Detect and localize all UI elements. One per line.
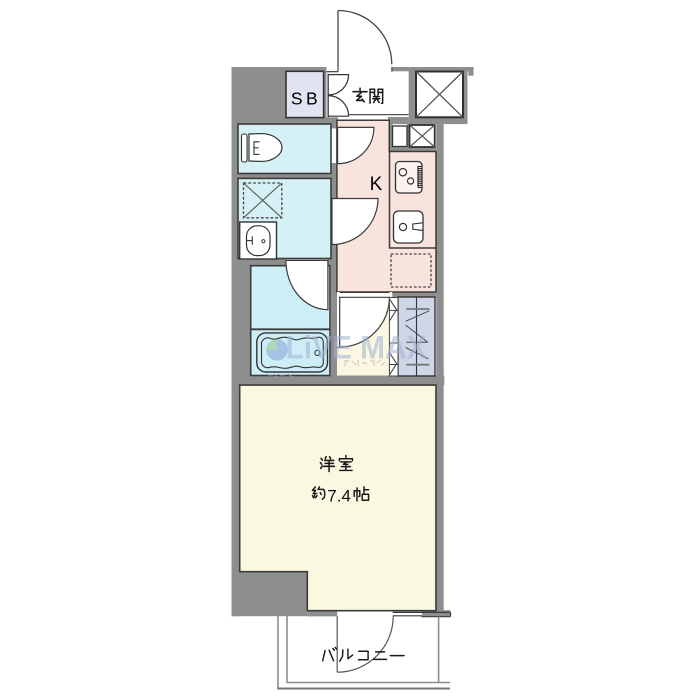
- svg-text:LiVE MAX: LiVE MAX: [286, 329, 427, 365]
- svg-text:SB: SB: [291, 89, 321, 109]
- svg-text:7.4: 7.4: [327, 487, 351, 506]
- svg-text:K: K: [370, 174, 383, 195]
